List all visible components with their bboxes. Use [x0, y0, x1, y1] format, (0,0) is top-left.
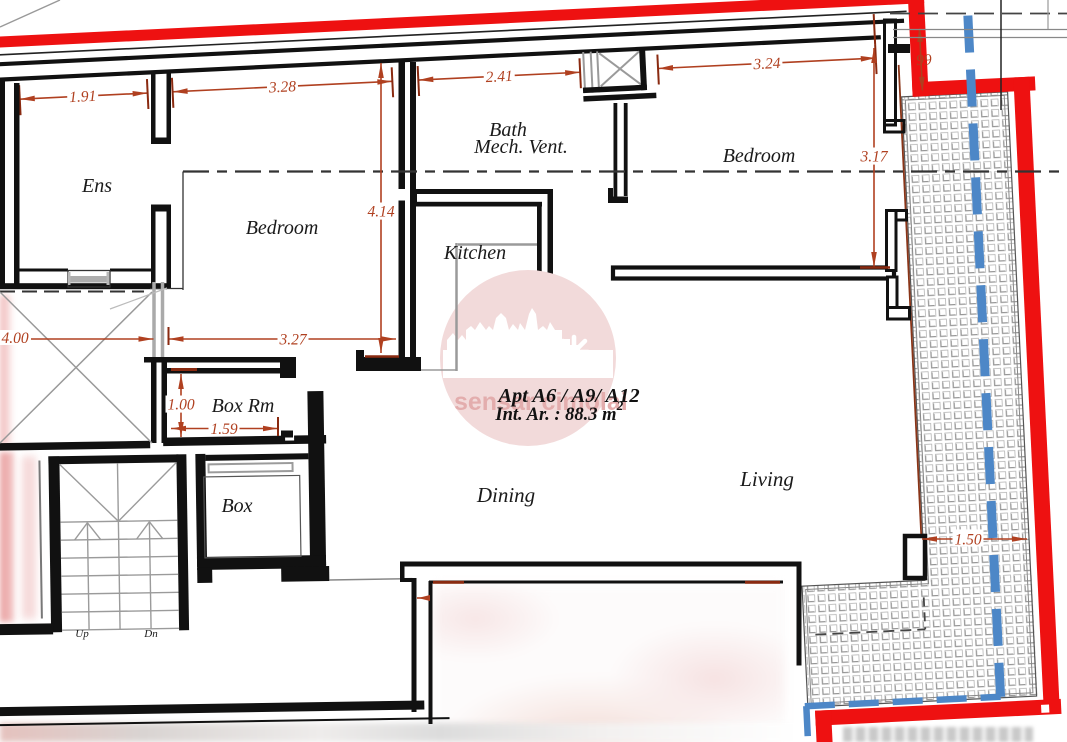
svg-text:Box: Box: [221, 495, 252, 517]
svg-text:99: 99: [916, 51, 933, 69]
svg-text:3.24: 3.24: [752, 55, 781, 73]
svg-text:Dining: Dining: [476, 483, 535, 507]
svg-text:Up: Up: [75, 628, 89, 640]
svg-text:Int. Ar. : 88.3 m: Int. Ar. : 88.3 m: [494, 405, 616, 425]
svg-text:Mech. Vent.: Mech. Vent.: [473, 136, 568, 158]
svg-text:4.00: 4.00: [1, 330, 28, 347]
svg-text:3.17: 3.17: [859, 148, 888, 165]
svg-text:Kitchen: Kitchen: [443, 242, 506, 264]
svg-text:Bedroom: Bedroom: [723, 145, 796, 167]
svg-text:Living: Living: [739, 467, 794, 491]
svg-text:Ens: Ens: [81, 175, 112, 197]
svg-text:4.14: 4.14: [367, 203, 394, 220]
svg-text:3.27: 3.27: [278, 331, 307, 348]
svg-text:1.00: 1.00: [167, 396, 194, 413]
svg-text:3.28: 3.28: [268, 78, 297, 96]
svg-text:1.59: 1.59: [210, 421, 237, 438]
svg-text:2: 2: [616, 398, 624, 413]
svg-text:Dn: Dn: [143, 628, 158, 640]
svg-text:Box Rm: Box Rm: [212, 395, 275, 417]
svg-text:Bedroom: Bedroom: [246, 217, 319, 239]
svg-text:1.91: 1.91: [69, 88, 97, 106]
svg-text:1.50: 1.50: [954, 531, 981, 548]
svg-text:2.41: 2.41: [485, 68, 513, 86]
